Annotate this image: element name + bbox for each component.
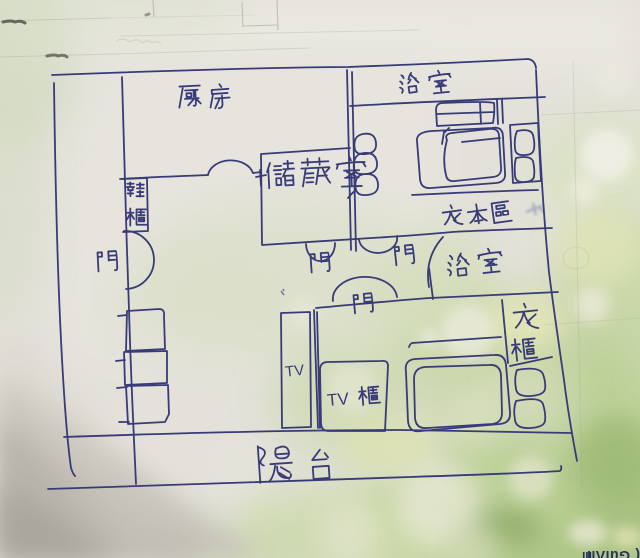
svg-text:GuıΛll: GuıΛll bbox=[587, 548, 630, 558]
svg-text:TV: TV bbox=[284, 362, 305, 381]
svg-text:TV: TV bbox=[326, 389, 350, 410]
svg-text:ııı: ııı bbox=[582, 549, 592, 558]
svg-text:(: ( bbox=[635, 548, 640, 558]
